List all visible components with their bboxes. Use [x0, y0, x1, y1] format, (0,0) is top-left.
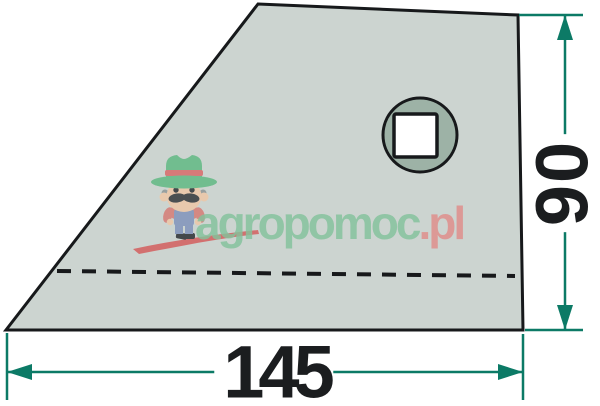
height-dimension-label: 90 [529, 134, 594, 232]
width-arrow-right [498, 364, 523, 380]
width-arrow-left [7, 364, 32, 380]
brand-tld: .pl [418, 197, 463, 249]
hat-brim [151, 176, 217, 189]
brand-name: agropomoc [195, 197, 418, 249]
watermark-text: agropomoc.pl [195, 200, 463, 246]
technical-drawing: agropomoc.pl 145 90 [0, 0, 600, 406]
width-dimension-label: 145 [214, 339, 333, 404]
part-outline [6, 4, 523, 330]
hat-band [165, 170, 203, 176]
hand-left [167, 219, 173, 225]
height-arrow-down [557, 305, 573, 330]
square-hole [394, 114, 437, 157]
height-arrow-up [557, 15, 573, 40]
